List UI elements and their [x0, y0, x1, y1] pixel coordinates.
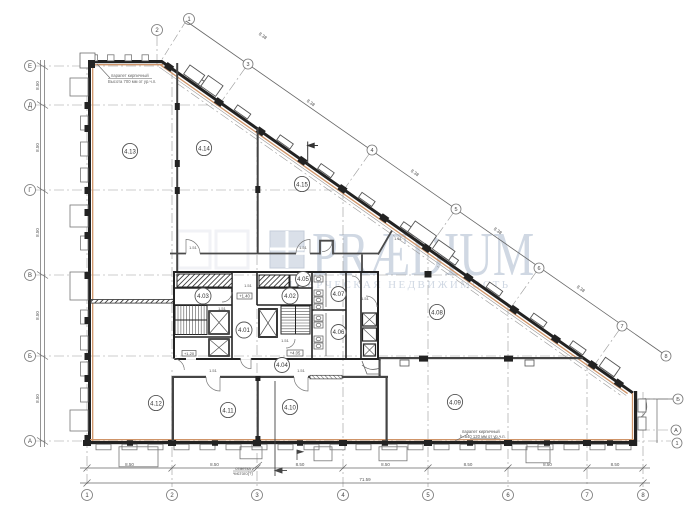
svg-text:А: А: [674, 428, 678, 434]
svg-text:Б: Б: [676, 397, 680, 403]
svg-text:8: 8: [664, 354, 667, 360]
svg-text:8.50: 8.50: [611, 462, 620, 467]
svg-text:8.50: 8.50: [35, 143, 40, 152]
svg-text:+4.05: +4.05: [290, 351, 301, 356]
svg-text:8.50: 8.50: [125, 462, 134, 467]
svg-text:+1.20: +1.20: [184, 351, 195, 356]
svg-text:+1.40: +1.40: [239, 294, 250, 299]
svg-text:4.14: 4.14: [198, 146, 210, 152]
svg-text:8.50: 8.50: [464, 462, 473, 467]
svg-text:4.01: 4.01: [238, 328, 250, 334]
svg-text:Б: Б: [28, 354, 32, 360]
svg-text:4: 4: [370, 148, 373, 154]
svg-text:8.50: 8.50: [35, 394, 40, 403]
svg-text:1.51: 1.51: [218, 306, 227, 311]
svg-text:71.59: 71.59: [359, 477, 371, 482]
svg-text:1: 1: [675, 441, 678, 447]
svg-text:8.50: 8.50: [210, 462, 219, 467]
svg-text:4.03: 4.03: [197, 294, 209, 300]
svg-text:Высота 700 мм от ур.ч.п.: Высота 700 мм от ур.ч.п.: [108, 79, 156, 84]
svg-text:4.07: 4.07: [333, 292, 345, 298]
svg-text:8.50: 8.50: [35, 81, 40, 90]
svg-text:В: В: [28, 273, 32, 279]
svg-text:8.50: 8.50: [381, 462, 390, 467]
svg-text:3: 3: [246, 62, 249, 68]
svg-text:8.50: 8.50: [35, 311, 40, 320]
svg-text:4.10: 4.10: [284, 405, 296, 411]
svg-text:4.05: 4.05: [297, 277, 309, 283]
svg-text:4.06: 4.06: [333, 330, 345, 336]
svg-text:1.51: 1.51: [189, 245, 198, 250]
svg-text:4.08: 4.08: [431, 310, 443, 316]
svg-text:Е: Е: [28, 64, 32, 70]
svg-text:1.51: 1.51: [297, 368, 306, 373]
svg-text:4.13: 4.13: [124, 149, 136, 155]
svg-text:8.50: 8.50: [35, 228, 40, 237]
svg-text:1.51: 1.51: [299, 245, 308, 250]
svg-text:4.09: 4.09: [449, 400, 461, 406]
svg-text:А: А: [28, 439, 32, 445]
svg-text:1.51: 1.51: [361, 296, 370, 301]
svg-text:4.04: 4.04: [276, 363, 288, 369]
svg-text:7: 7: [620, 324, 623, 330]
svg-text:чистого(?): чистого(?): [233, 471, 253, 476]
svg-text:5: 5: [454, 207, 457, 213]
svg-text:1.51: 1.51: [209, 368, 218, 373]
svg-text:1.51: 1.51: [394, 236, 403, 241]
svg-text:парапет кирпичный: парапет кирпичный: [111, 73, 149, 78]
svg-text:4.11: 4.11: [222, 408, 234, 414]
svg-text:4.02: 4.02: [284, 294, 296, 300]
svg-text:8.50: 8.50: [296, 462, 305, 467]
svg-text:Д: Д: [28, 103, 32, 109]
svg-text:4.15: 4.15: [296, 182, 308, 188]
svg-text:4.12: 4.12: [150, 401, 162, 407]
svg-text:1.51: 1.51: [281, 338, 290, 343]
svg-text:6: 6: [537, 266, 540, 272]
svg-text:1.51: 1.51: [244, 283, 253, 288]
